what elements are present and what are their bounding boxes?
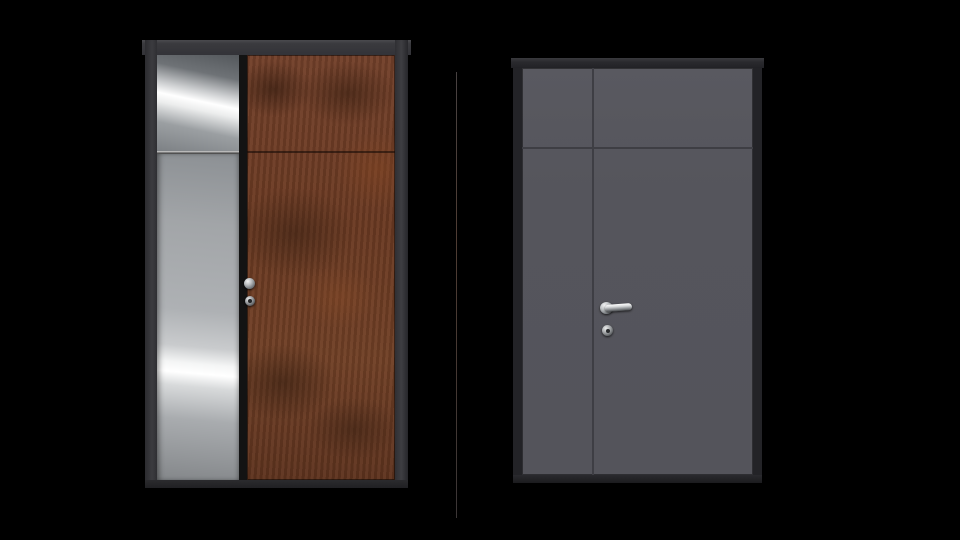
scene-background: [0, 0, 960, 540]
stainless-sidelite-lower-section: [157, 154, 239, 480]
divider-line: [456, 72, 457, 518]
stainless-sidelite-upper-section: [157, 55, 239, 151]
lever-handle: [605, 303, 632, 312]
lock-cylinder-right-door: [602, 325, 613, 336]
stainless-sidelite-panel: [157, 55, 239, 480]
door-left-sill: [145, 480, 408, 488]
door-right-lintel: [511, 58, 764, 68]
vertical-panel-seam: [592, 68, 594, 475]
door-knob: [244, 278, 255, 289]
door-left-jamb-right: [395, 40, 408, 488]
door-left-jamb-left: [145, 40, 157, 488]
corten-leaf-seam: [247, 151, 395, 153]
corten-rust-door-leaf: [247, 55, 395, 480]
door-left-lintel: [142, 40, 411, 55]
door-unit-right: [513, 58, 762, 483]
transom-panel-seam: [522, 147, 753, 149]
anthracite-door-surface: [522, 68, 753, 475]
panel-gap-shadow: [239, 55, 247, 480]
door-right-sill: [513, 475, 762, 483]
door-unit-left: [145, 40, 408, 488]
lock-cylinder-left-door: [245, 296, 255, 306]
door-left-opening: [157, 55, 395, 480]
